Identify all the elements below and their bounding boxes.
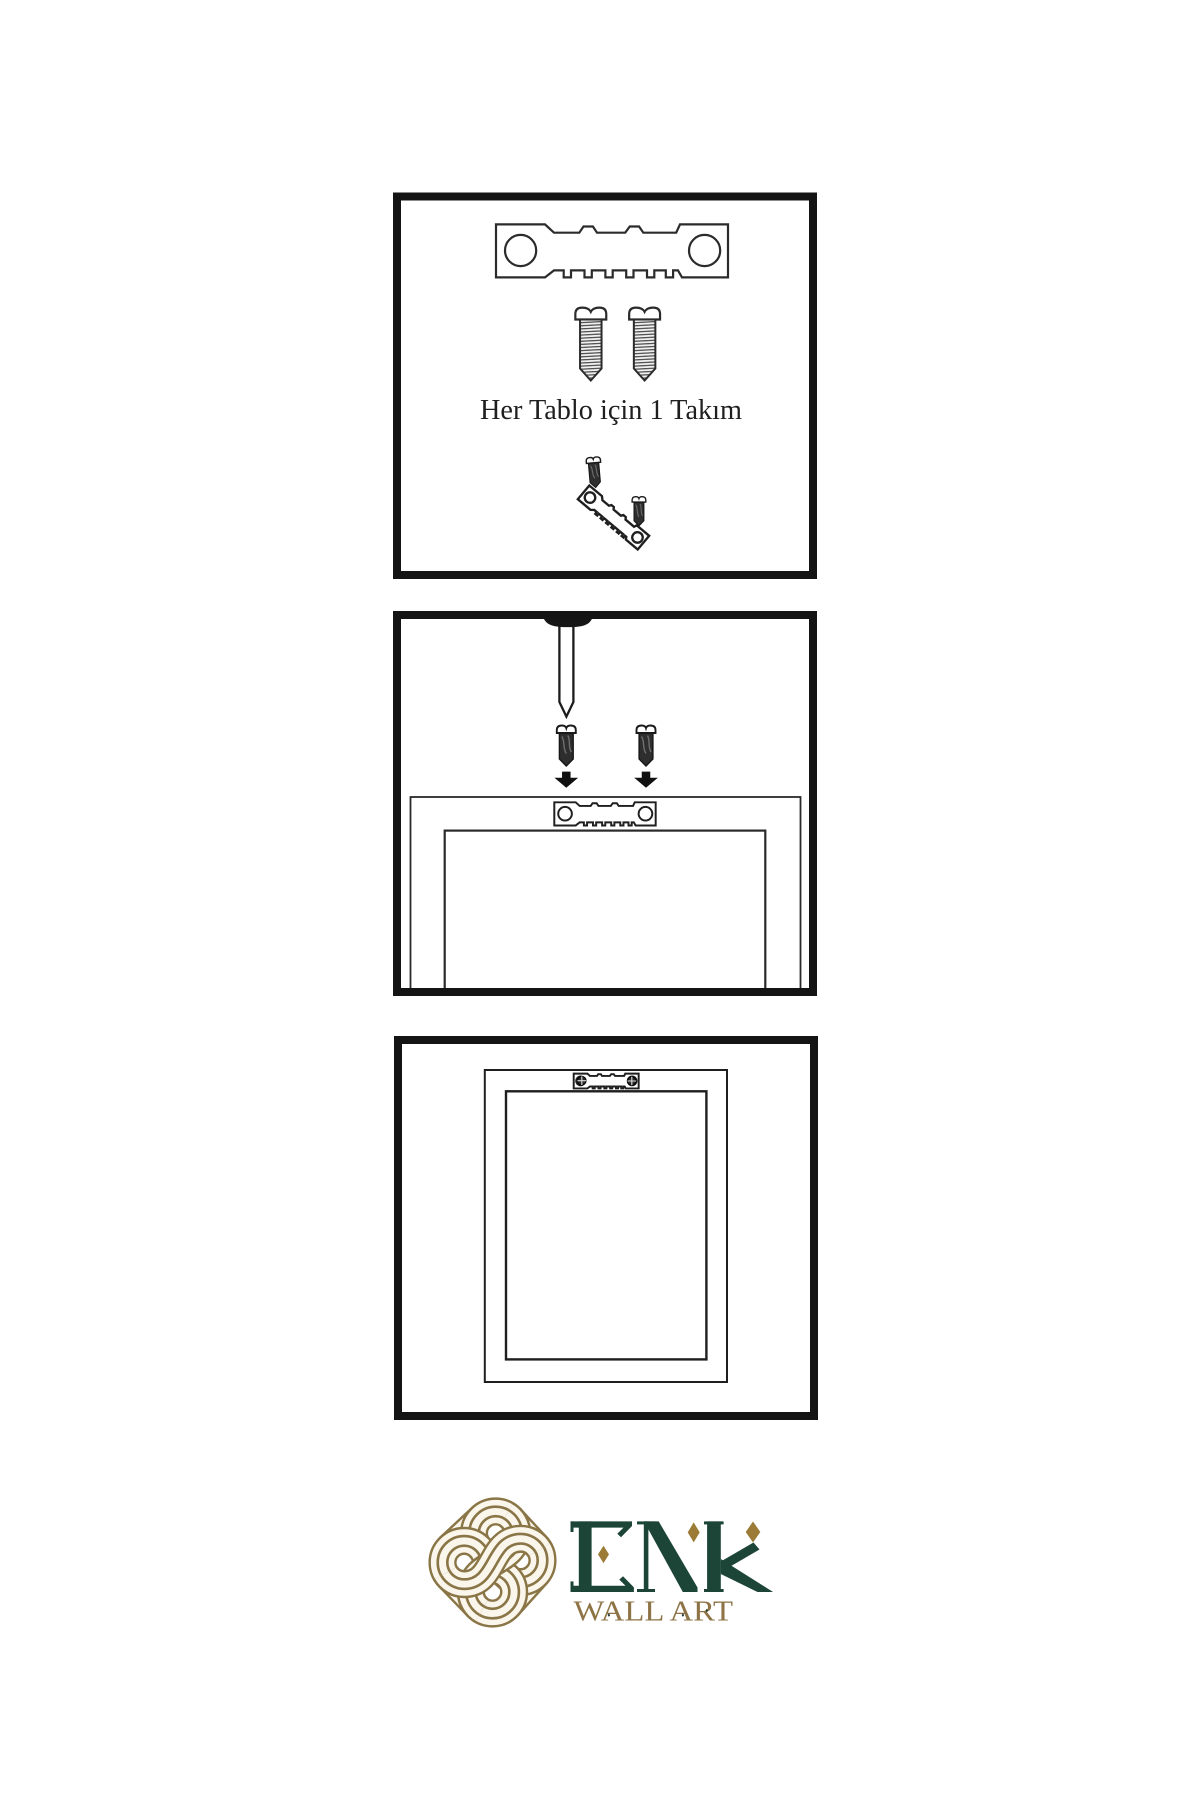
svg-text:Her Tablo için 1 Takım: Her Tablo için 1 Takım (480, 394, 742, 426)
svg-text:WALL ART: WALL ART (574, 1596, 734, 1628)
